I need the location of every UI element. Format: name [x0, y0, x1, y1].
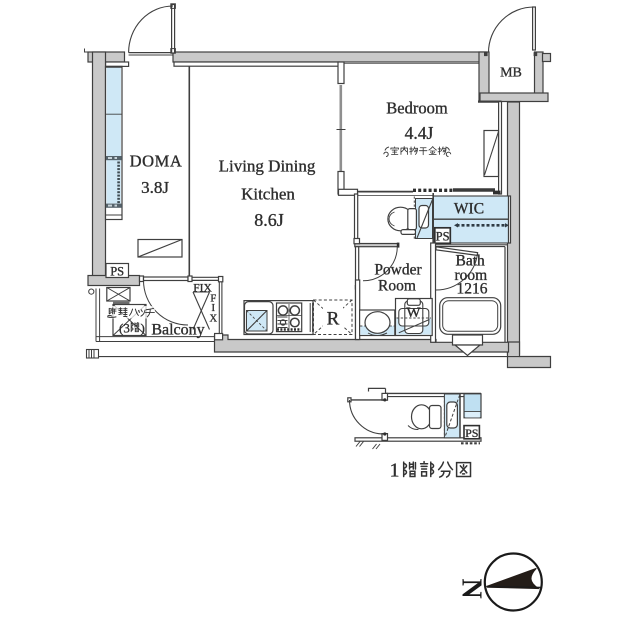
svg-text:PS: PS — [465, 426, 478, 440]
svg-text:8.6J: 8.6J — [254, 210, 284, 230]
svg-text:PS: PS — [436, 230, 450, 244]
svg-text:I: I — [212, 303, 216, 314]
svg-text:Living Dining: Living Dining — [219, 157, 316, 176]
svg-text:DOMA: DOMA — [130, 152, 183, 171]
svg-text:1216: 1216 — [457, 281, 488, 298]
svg-text:WIC: WIC — [454, 201, 484, 218]
svg-text:W: W — [406, 305, 421, 321]
svg-text:PS: PS — [110, 265, 124, 279]
svg-text:4.4J: 4.4J — [405, 123, 434, 143]
svg-text:R: R — [327, 309, 340, 330]
svg-text:N: N — [456, 579, 487, 599]
svg-text:Kitchen: Kitchen — [241, 185, 295, 204]
svg-text:Bedroom: Bedroom — [386, 99, 448, 118]
svg-text:Powder: Powder — [374, 262, 422, 279]
svg-text:1: 1 — [390, 460, 400, 482]
svg-text:X: X — [210, 314, 218, 325]
svg-text:3.8J: 3.8J — [141, 178, 169, 197]
svg-text:MB: MB — [500, 66, 522, 81]
svg-text:): ) — [141, 321, 145, 336]
svg-text:Balcony: Balcony — [151, 322, 204, 339]
svg-text:Room: Room — [378, 278, 416, 295]
svg-text:(3: (3 — [119, 321, 130, 336]
